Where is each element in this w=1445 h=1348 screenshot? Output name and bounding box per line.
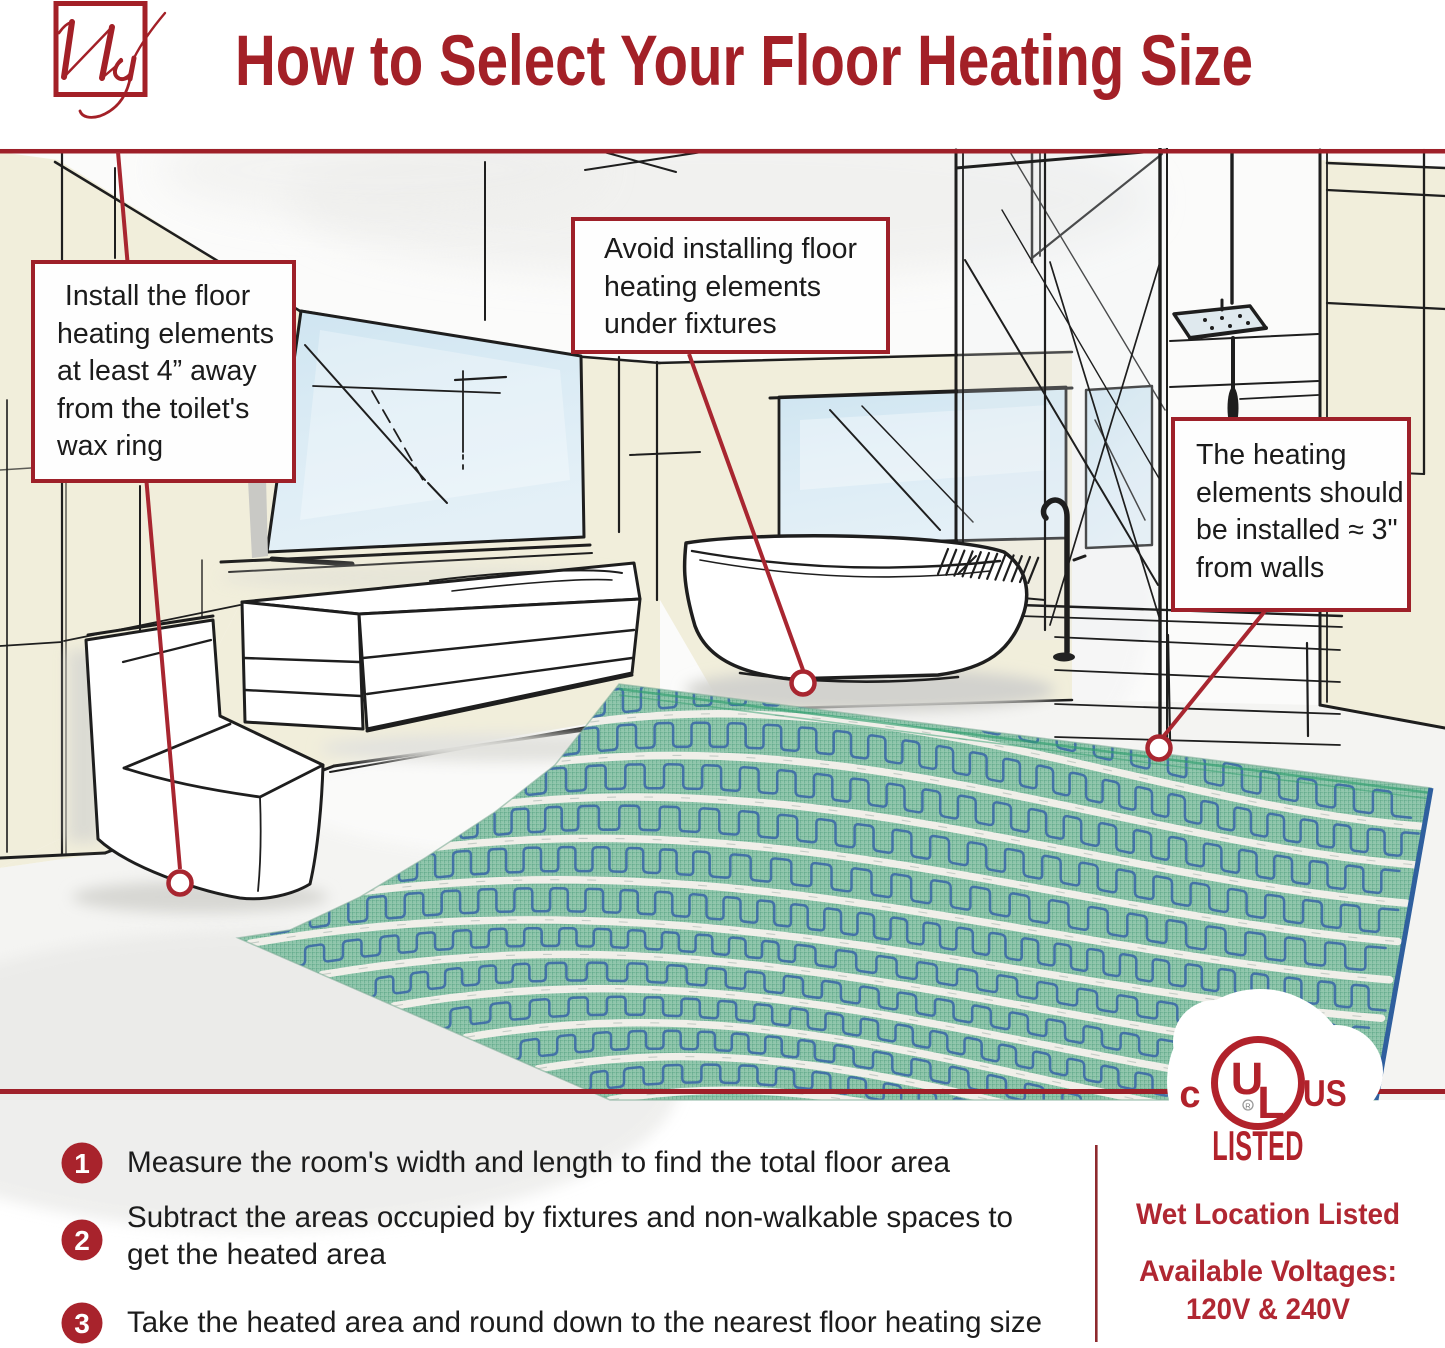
svg-text:3: 3 bbox=[74, 1308, 90, 1339]
svg-text:How to Select Your Floor Heati: How to Select Your Floor Heating Size bbox=[235, 22, 1253, 101]
svg-text:Available Voltages:: Available Voltages: bbox=[1139, 1255, 1397, 1288]
svg-text:120V & 240V: 120V & 240V bbox=[1186, 1293, 1350, 1326]
svg-text:2: 2 bbox=[74, 1225, 90, 1256]
svg-text:1: 1 bbox=[74, 1148, 90, 1179]
svg-text:Wet Location Listed: Wet Location Listed bbox=[1136, 1198, 1400, 1231]
svg-text:Measure the room's width and l: Measure the room's width and length to f… bbox=[127, 1146, 951, 1179]
svg-text:Subtract the areas occupied by: Subtract the areas occupied by fixtures … bbox=[127, 1201, 1013, 1234]
svg-text:Take the heated area and round: Take the heated area and round down to t… bbox=[127, 1306, 1042, 1339]
svg-text:get the heated area: get the heated area bbox=[127, 1238, 387, 1271]
